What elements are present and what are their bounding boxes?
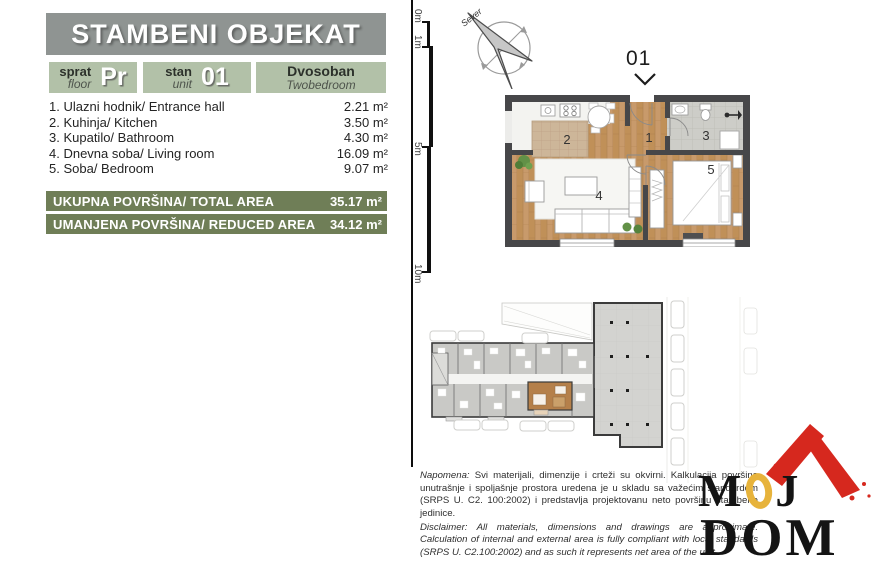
room-name: 2. Kuhinja/ Kitchen [49, 115, 157, 131]
list-item: 4. Dnevna soba/ Living room 16.09 m² [49, 146, 388, 162]
total-area-label: UKUPNA POVRŠINA/ TOTAL AREA [46, 194, 274, 209]
room-number-2: 2 [563, 132, 570, 147]
type-label-en: Twobedroom [286, 78, 355, 92]
unit-label-en: unit [173, 78, 192, 91]
room-area: 2.21 m² [344, 99, 388, 115]
list-item: 2. Kuhinja/ Kitchen 3.50 m² [49, 115, 388, 131]
unit-box: stan unit 01 [143, 62, 251, 93]
total-area-bar: UKUPNA POVRŠINA/ TOTAL AREA 35.17 m² [46, 191, 387, 211]
room-area: 4.30 m² [344, 130, 388, 146]
room-name: 5. Soba/ Bedroom [49, 161, 154, 177]
reduced-area-label: UMANJENA POVRŠINA/ REDUCED AREA [46, 217, 315, 232]
floor-label-sr: sprat [59, 65, 91, 78]
scale-tick [422, 146, 429, 148]
scale-label-1m: 1m [412, 35, 423, 49]
unit-label-sr: stan [165, 65, 192, 78]
scale-tick [422, 46, 429, 48]
room-number-5: 5 [707, 162, 714, 177]
floor-value: Pr [100, 63, 126, 92]
scale-label-5m: 5m [412, 142, 423, 156]
list-item: 1. Ulazni hodnik/ Entrance hall 2.21 m² [49, 99, 388, 115]
vertical-divider [411, 0, 413, 467]
room-number-4: 4 [595, 188, 602, 203]
scale-tick [422, 21, 429, 23]
type-box: Dvosoban Twobedroom [256, 62, 386, 93]
unit-value: 01 [201, 63, 229, 92]
room-name: 4. Dnevna soba/ Living room [49, 146, 214, 162]
type-label-sr: Dvosoban [287, 64, 355, 78]
reduced-area-bar: UMANJENA POVRŠINA/ REDUCED AREA 34.12 m² [46, 214, 387, 234]
brochure-page: STAMBENI OBJEKAT sprat floor Pr stan uni… [0, 0, 878, 565]
room-area: 16.09 m² [337, 146, 388, 162]
room-area: 3.50 m² [344, 115, 388, 131]
scale-label-10m: 10m [412, 264, 423, 283]
apartment-floorplan: 1 2 3 4 5 [505, 95, 750, 247]
logo-letter-o: O [744, 471, 775, 511]
room-number-3: 3 [702, 128, 709, 143]
scale-bar-segment [427, 21, 430, 47]
floor-label-en: floor [68, 78, 91, 91]
scale-bar-segment [429, 46, 433, 147]
scale-bar-segment [427, 146, 431, 273]
page-title-box: STAMBENI OBJEKAT [46, 13, 386, 55]
logo-word-dom: DOM [700, 508, 839, 565]
reduced-area-value: 34.12 m² [330, 217, 387, 232]
compass-north-icon: Sever [458, 5, 546, 89]
page-title: STAMBENI OBJEKAT [71, 19, 361, 50]
scale-label-0m: 0m [412, 9, 423, 23]
floor-box: sprat floor Pr [49, 62, 137, 93]
scale-tick [422, 271, 429, 273]
room-list: 1. Ulazni hodnik/ Entrance hall 2.21 m² … [49, 99, 388, 177]
room-name: 1. Ulazni hodnik/ Entrance hall [49, 99, 225, 115]
room-number-1: 1 [645, 130, 652, 145]
chevron-down-icon [633, 72, 657, 86]
unit-number-callout: 01 [626, 47, 651, 71]
room-area: 9.07 m² [344, 161, 388, 177]
total-area-value: 35.17 m² [330, 194, 387, 209]
room-name: 3. Kupatilo/ Bathroom [49, 130, 174, 146]
list-item: 5. Soba/ Bedroom 9.07 m² [49, 161, 388, 177]
moj-dom-logo: M O J DOM [688, 396, 878, 565]
list-item: 3. Kupatilo/ Bathroom 4.30 m² [49, 130, 388, 146]
